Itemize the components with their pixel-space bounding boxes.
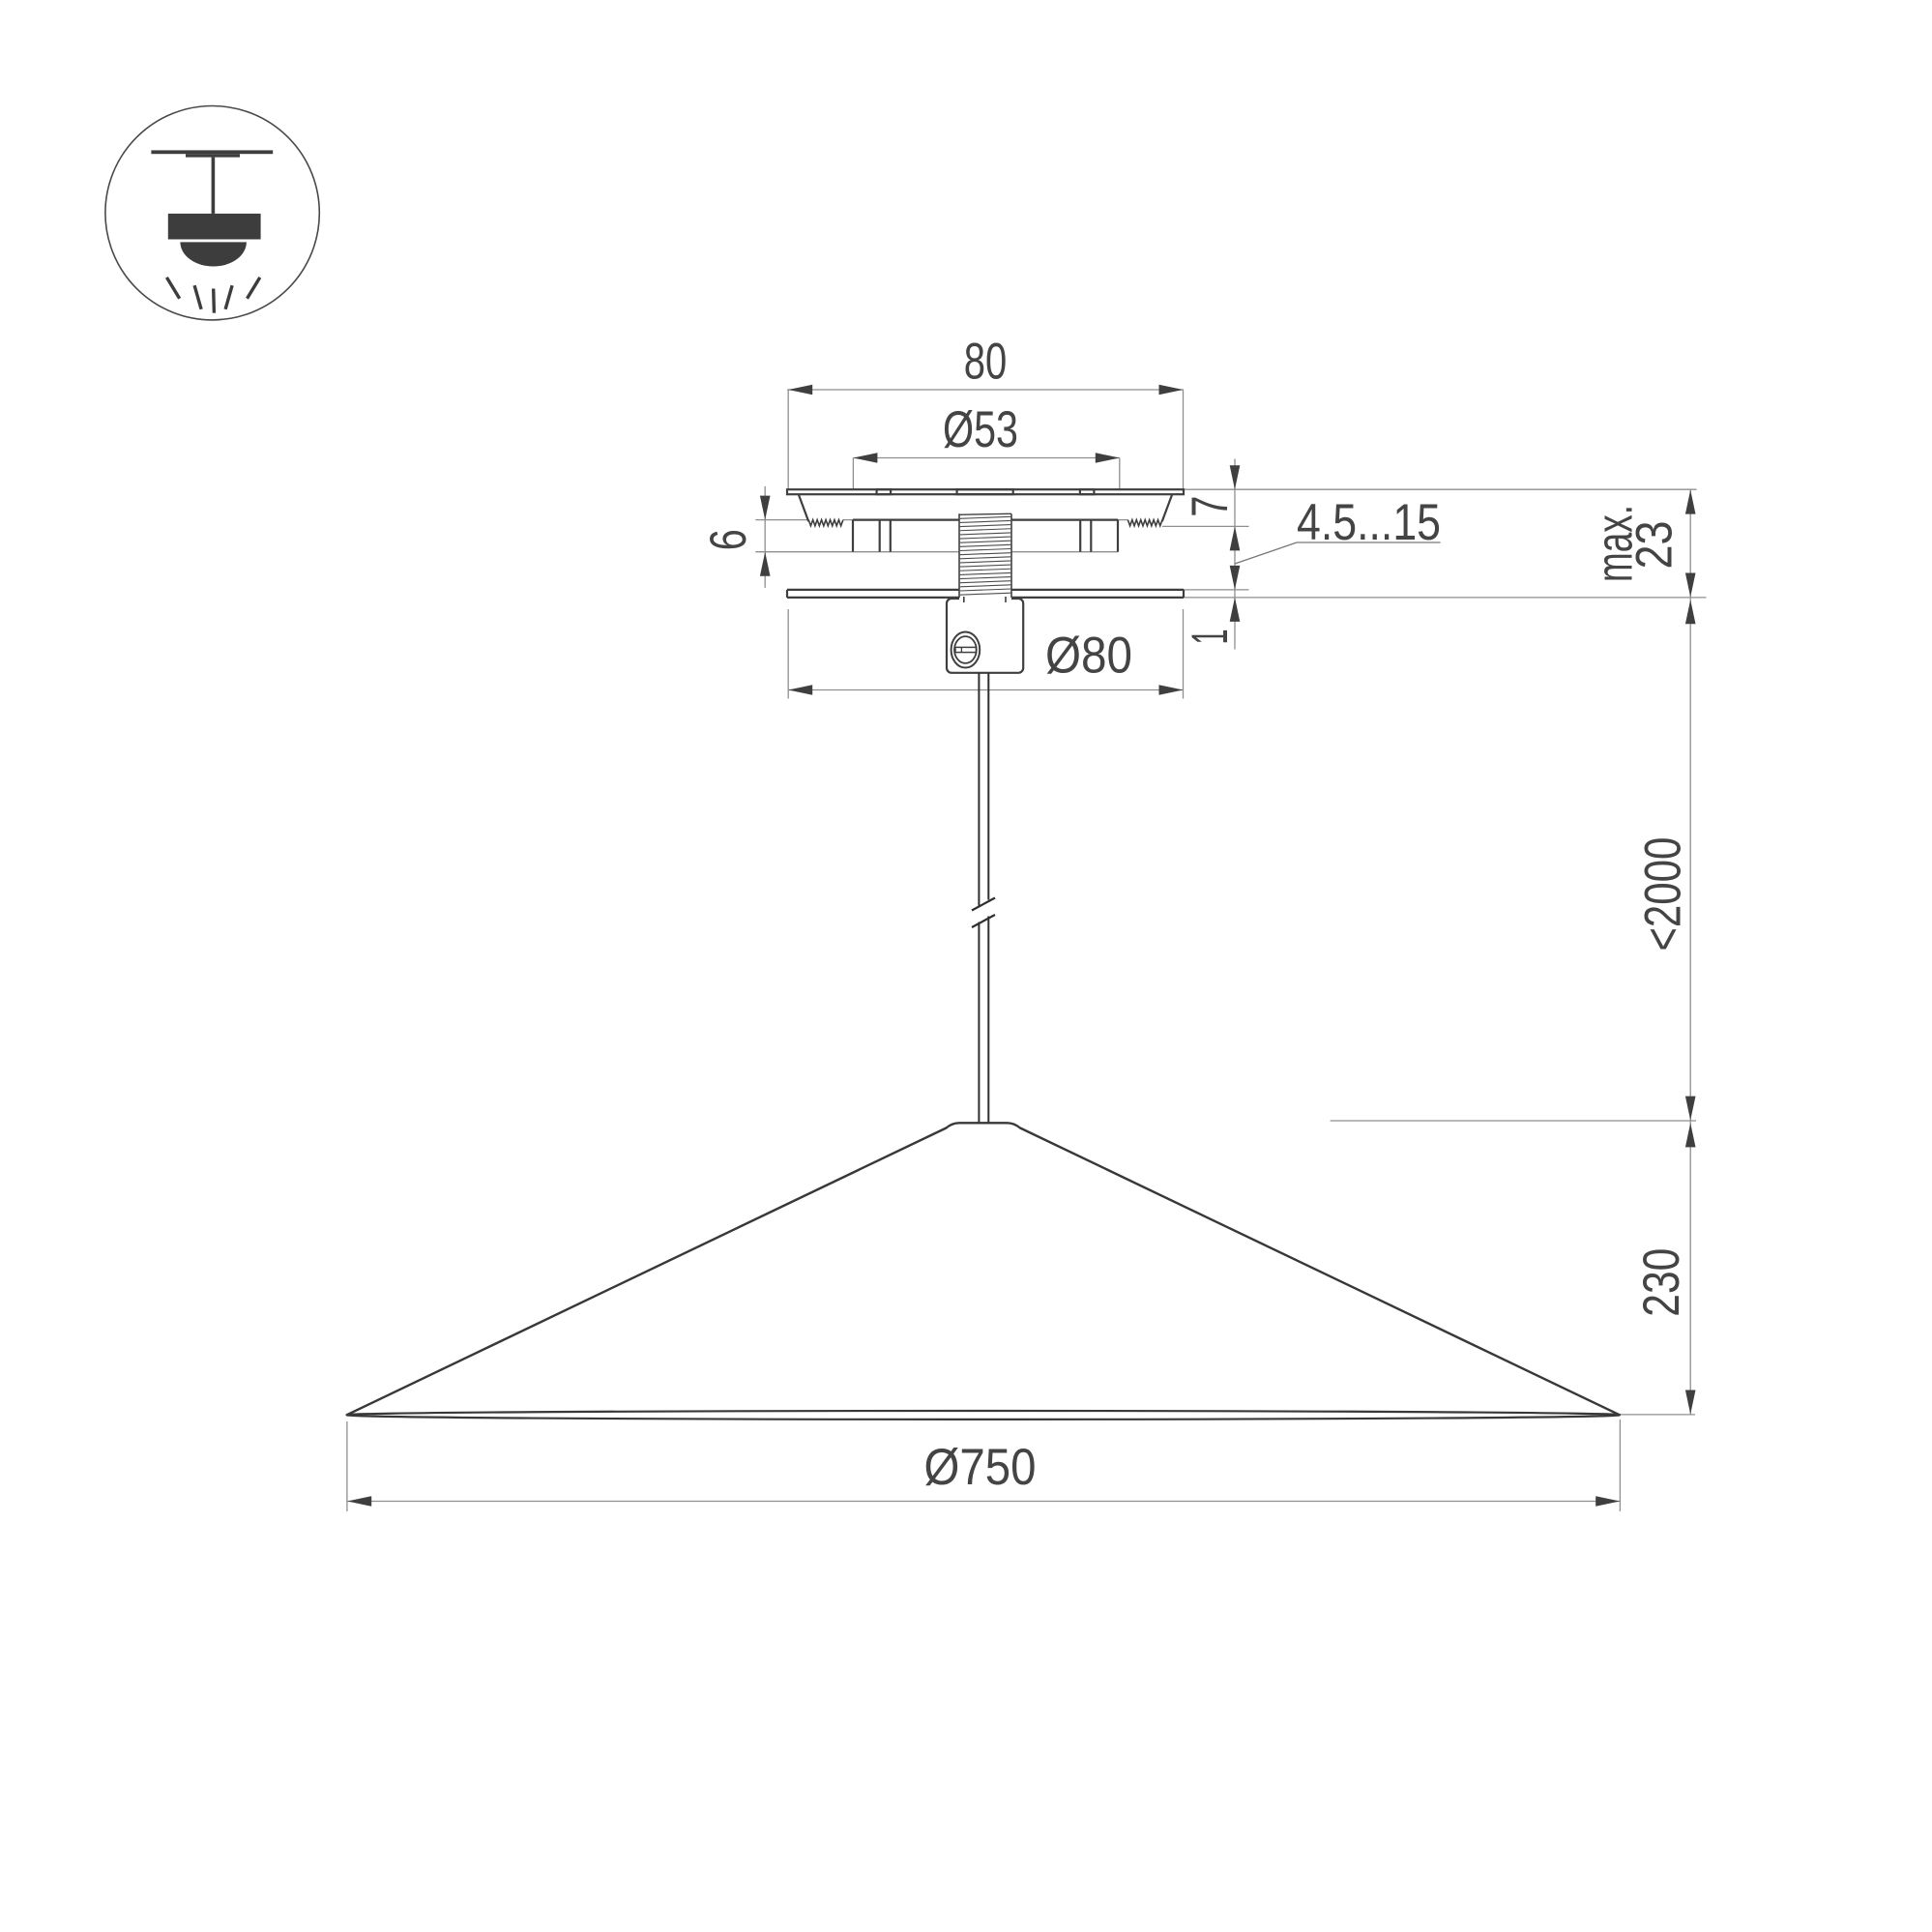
svg-text:Ø750: Ø750 — [924, 1439, 1037, 1496]
svg-text:230: 230 — [1633, 1248, 1690, 1317]
svg-text:Ø53: Ø53 — [943, 401, 1018, 458]
svg-text:7: 7 — [1182, 496, 1239, 517]
svg-text:4.5...15: 4.5...15 — [1297, 494, 1441, 551]
svg-text:80: 80 — [964, 334, 1008, 391]
svg-text:1: 1 — [1182, 629, 1239, 645]
svg-text:23: 23 — [1626, 521, 1683, 570]
svg-text:6: 6 — [700, 529, 757, 550]
svg-text:<2000: <2000 — [1634, 837, 1691, 951]
svg-text:Ø80: Ø80 — [1045, 628, 1132, 685]
